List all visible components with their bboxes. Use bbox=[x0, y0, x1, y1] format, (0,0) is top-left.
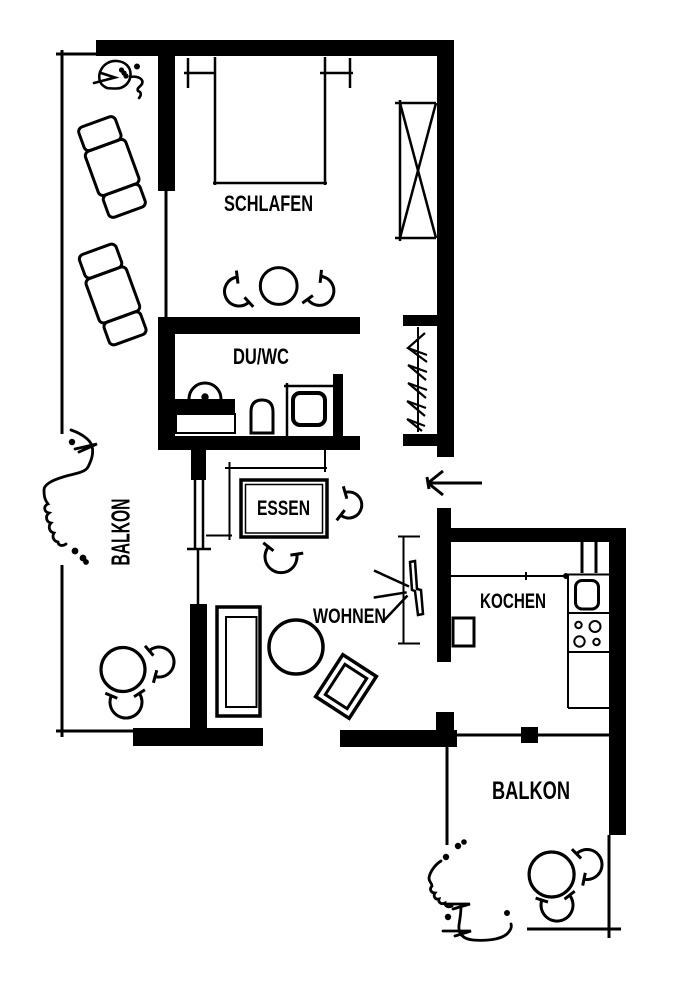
svg-text:BALKON: BALKON bbox=[106, 499, 136, 566]
svg-text:DU/WC: DU/WC bbox=[233, 344, 289, 369]
svg-text:SCHLAFEN: SCHLAFEN bbox=[224, 191, 313, 216]
svg-text:ESSEN: ESSEN bbox=[257, 497, 310, 520]
svg-text:BALKON: BALKON bbox=[492, 777, 570, 805]
svg-text:KOCHEN: KOCHEN bbox=[480, 590, 546, 613]
svg-text:WOHNEN: WOHNEN bbox=[313, 605, 386, 628]
